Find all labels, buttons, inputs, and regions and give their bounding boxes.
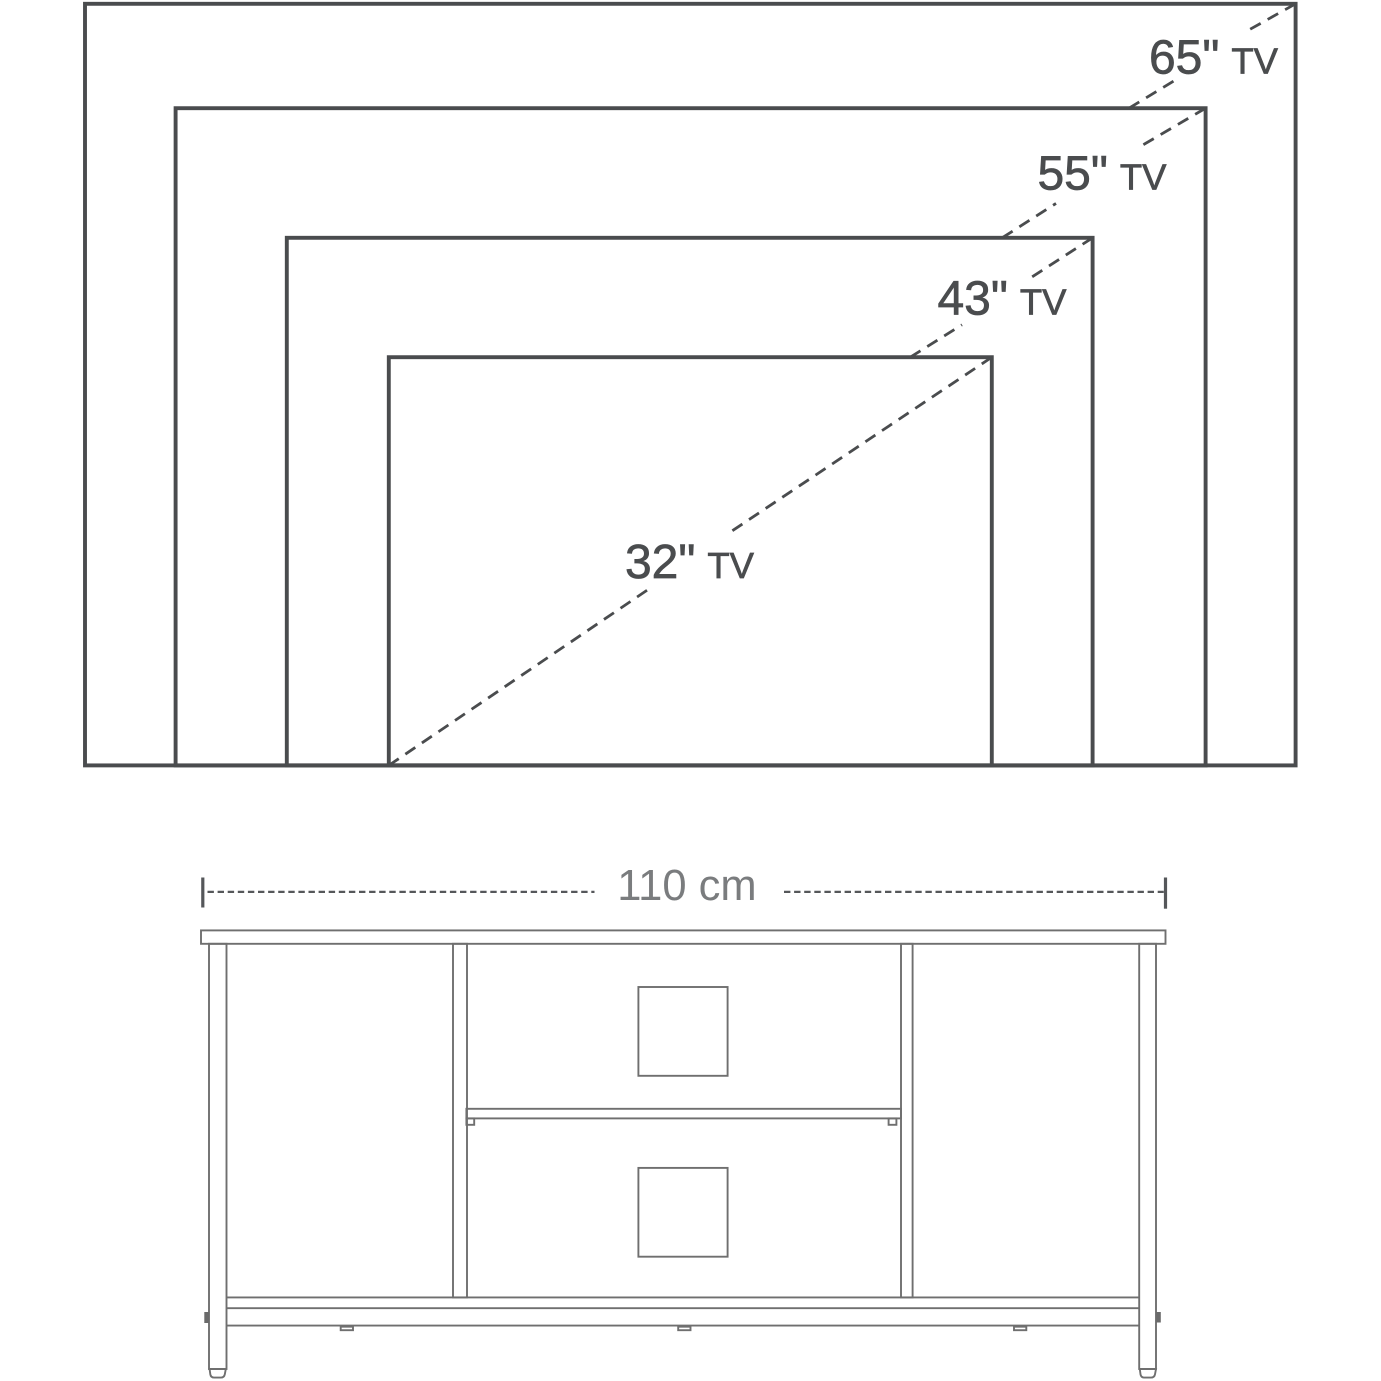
- svg-text:32"TV: 32"TV: [625, 536, 755, 589]
- svg-text:65"TV: 65"TV: [1149, 32, 1279, 85]
- svg-text:55"TV: 55"TV: [1037, 148, 1167, 201]
- svg-text:43"TV: 43"TV: [937, 273, 1067, 326]
- svg-text:110 cm: 110 cm: [617, 862, 756, 910]
